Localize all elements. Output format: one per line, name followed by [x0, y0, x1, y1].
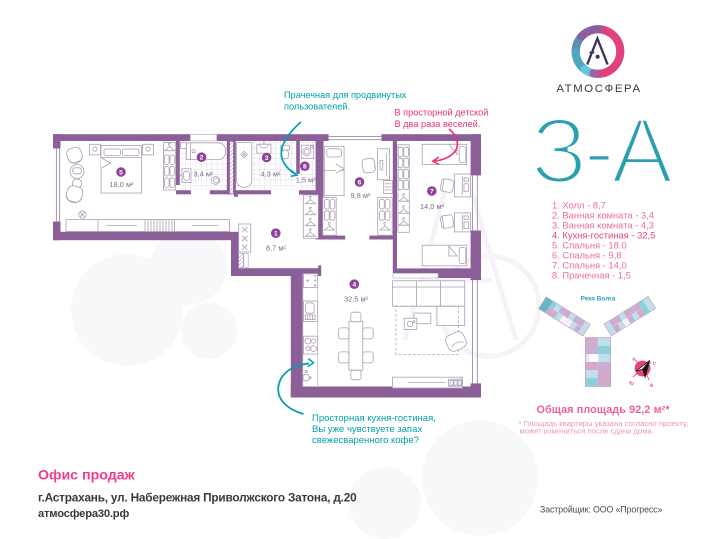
svg-text:3: 3 [265, 155, 269, 162]
svg-text:Река Волга: Река Волга [581, 296, 616, 303]
svg-text:7: 7 [430, 189, 434, 196]
svg-text:пользователей.: пользователей. [284, 102, 350, 112]
svg-text:Просторная кухня-гостиная,: Просторная кухня-гостиная, [312, 413, 436, 424]
svg-text:4,3 м²: 4,3 м² [261, 170, 281, 179]
svg-text:9,8 м²: 9,8 м² [351, 191, 371, 200]
svg-text:1: 1 [274, 231, 278, 238]
svg-text:Прачечная для продвинутых: Прачечная для продвинутых [284, 90, 407, 100]
svg-text:8: 8 [303, 164, 307, 171]
svg-text:32,5 м²: 32,5 м² [344, 295, 369, 304]
svg-text:3,4 м²: 3,4 м² [194, 170, 214, 179]
svg-text:Общая площадь 92,2 м²*: Общая площадь 92,2 м²* [537, 404, 671, 416]
svg-text:г.Астрахань, ул. Набережная Пр: г.Астрахань, ул. Набережная Приволжского… [38, 491, 357, 505]
svg-text:атмосфера30.рф: атмосфера30.рф [38, 508, 129, 520]
svg-text:Офис продаж: Офис продаж [38, 468, 136, 484]
svg-text:В просторной детской: В просторной детской [395, 108, 489, 118]
svg-text:2: 2 [200, 155, 204, 162]
svg-text:18,0 м²: 18,0 м² [110, 180, 135, 189]
svg-text:свежесваренного кофе?: свежесваренного кофе? [312, 435, 419, 446]
svg-text:В два раза веселей.: В два раза веселей. [395, 119, 481, 129]
svg-text:АТМОСФЕРА: АТМОСФЕРА [556, 83, 641, 95]
svg-text:8,7 м²: 8,7 м² [266, 244, 286, 253]
svg-text:8. Прачечная - 1,5: 8. Прачечная - 1,5 [552, 269, 631, 280]
svg-text:Вы уже чувствуете запах: Вы уже чувствуете запах [312, 424, 422, 435]
svg-text:5: 5 [119, 170, 123, 177]
svg-text:6: 6 [358, 180, 362, 187]
svg-text:14,0 м²: 14,0 м² [420, 202, 445, 211]
svg-text:З-А: З-А [531, 99, 673, 203]
svg-text:4: 4 [352, 282, 356, 289]
svg-text:1,5 м²: 1,5 м² [296, 175, 316, 184]
svg-text:Застройщик: ООО «Прогресс»: Застройщик: ООО «Прогресс» [540, 505, 662, 515]
svg-text:может измениться после сдачи д: может измениться после сдачи дома. [520, 427, 654, 436]
